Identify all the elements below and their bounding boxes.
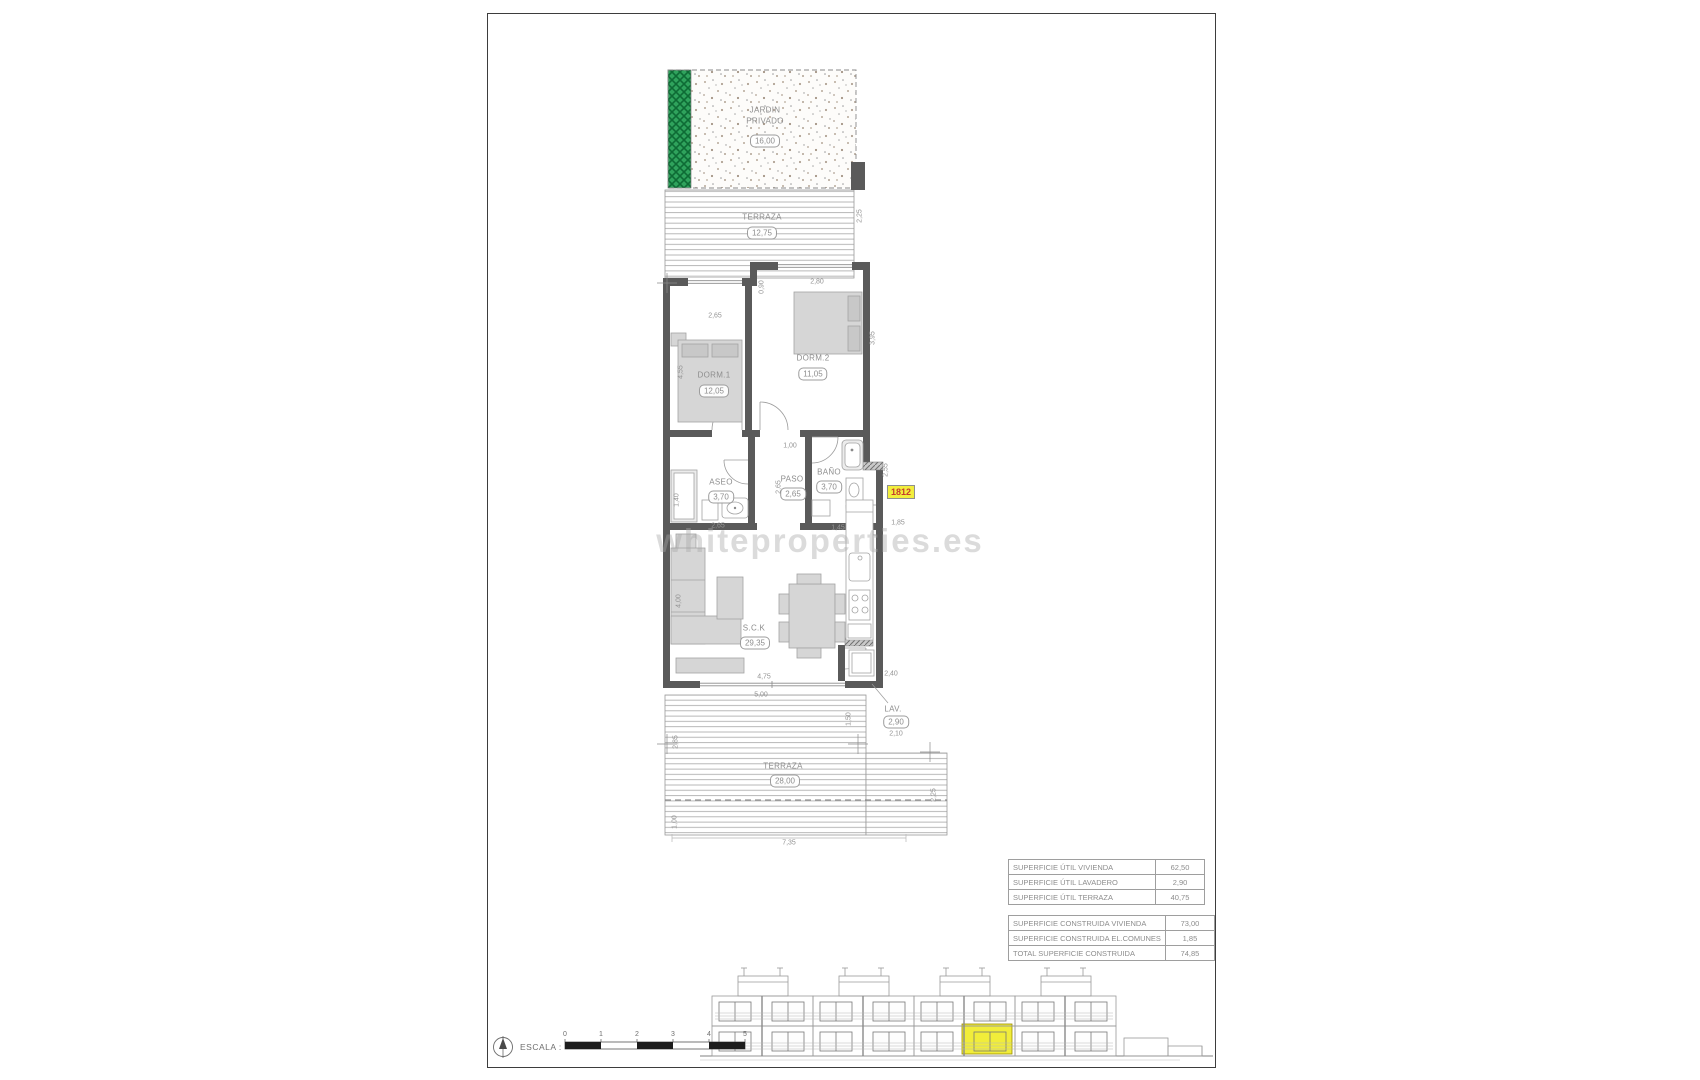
scale-tick: 4 [707, 1031, 711, 1038]
room-label-salon: S.C.K [743, 624, 765, 633]
table-cell-label: SUPERFICIE CONSTRUIDA EL.COMUNES [1009, 931, 1166, 946]
terrace-bottom-label: TERRAZA [763, 762, 802, 771]
table-row: SUPERFICIE CONSTRUIDA VIVIENDA 73,00 [1009, 916, 1215, 931]
garden-label-line2: PRIVADO [746, 117, 784, 126]
dim-living-side: 4,00 [676, 594, 683, 608]
dim-terrace2-top: 5,00 [754, 692, 768, 699]
unit-number-tag: 1812 [887, 485, 915, 499]
terrace-bottom-area-value: 28,00 [770, 775, 800, 788]
scale-label: ESCALA : [520, 1042, 562, 1052]
table-row: TOTAL SUPERFICIE CONSTRUIDA 74,85 [1009, 946, 1215, 961]
dim-terrace2-right: 2,25 [931, 788, 938, 802]
room-area-lav: 2,90 [883, 716, 909, 729]
terrace-top-area-value: 12,75 [747, 227, 777, 240]
table-cell-value: 74,85 [1165, 946, 1214, 961]
scale-tick: 3 [671, 1031, 675, 1038]
room-area-salon: 29,35 [740, 637, 770, 650]
scale-tick: 2 [635, 1031, 639, 1038]
dim-terrace2-bottom: 7,35 [782, 840, 796, 847]
table-cell-label: SUPERFICIE ÚTIL TERRAZA [1009, 890, 1156, 905]
dim-dorm1-side: 4,55 [678, 365, 685, 379]
scale-tick: 1 [599, 1031, 603, 1038]
dim-paso-depth: 2,65 [776, 480, 783, 494]
table-row: SUPERFICIE ÚTIL TERRAZA 40,75 [1009, 890, 1205, 905]
watermark: whiteproperties.es [656, 522, 984, 560]
dim-lav-width: 2,10 [889, 731, 903, 738]
elevation-drawing [700, 968, 1213, 1060]
dim-terrace2-step: 1,50 [846, 712, 853, 726]
dim-terrace2-left: 2,85 [673, 735, 680, 749]
dim-terrace2-bottom-left: 1,00 [672, 815, 679, 829]
dim-dorm1-window: 2,65 [708, 313, 722, 320]
table-cell-label: SUPERFICIE ÚTIL LAVADERO [1009, 875, 1156, 890]
room-label-dorm2: DORM.2 [797, 354, 830, 363]
room-area-bano: 3,70 [816, 481, 842, 494]
dim-bano-width: 1,45 [831, 525, 845, 532]
room-area-paso: 2,65 [780, 488, 806, 501]
garden-area [668, 70, 856, 188]
scale-tick: 5 [743, 1031, 747, 1038]
dim-terrace-top-right: 2,25 [857, 209, 864, 223]
garden-label-line1: JARDIN [750, 106, 781, 115]
table-cell-value: 73,00 [1165, 916, 1214, 931]
dim-step-depth: 0,90 [759, 280, 766, 294]
table-row: SUPERFICIE ÚTIL VIVIENDA 62,50 [1009, 860, 1205, 875]
dim-dorm2-window: 2,80 [810, 279, 824, 286]
page: { "plan": { "garden": {"label1": "JARDIN… [0, 0, 1700, 1080]
dim-aseo-width: 2,65 [711, 523, 725, 530]
table-cell-value: 40,75 [1156, 890, 1205, 905]
room-area-dorm1: 12,05 [699, 385, 729, 398]
room-label-bano: BAÑO [817, 468, 841, 477]
table-cell-label: SUPERFICIE ÚTIL VIVIENDA [1009, 860, 1156, 875]
dim-bano-side: 2,55 [883, 463, 890, 477]
dim-paso-top: 1,00 [783, 443, 797, 450]
highlighted-unit [962, 1024, 1012, 1054]
dim-dorm2-side: 3,95 [870, 331, 877, 345]
table-row: SUPERFICIE ÚTIL LAVADERO 2,90 [1009, 875, 1205, 890]
built-surface-table: SUPERFICIE CONSTRUIDA VIVIENDA 73,00 SUP… [1008, 915, 1215, 961]
north-arrow [494, 1036, 513, 1058]
table-cell-value: 1,85 [1165, 931, 1214, 946]
room-label-dorm1: DORM.1 [698, 371, 731, 380]
dim-aseo-side: 1,40 [674, 493, 681, 507]
room-area-aseo: 3,70 [708, 491, 734, 504]
room-area-dorm2: 11,05 [798, 368, 827, 381]
room-label-lav: LAV. [884, 705, 901, 714]
terrace-top-label: TERRAZA [742, 213, 781, 222]
table-cell-label: SUPERFICIE CONSTRUIDA VIVIENDA [1009, 916, 1166, 931]
garden-area-value: 16,00 [750, 135, 780, 148]
room-label-aseo: ASEO [709, 478, 732, 487]
table-row: SUPERFICIE CONSTRUIDA EL.COMUNES 1,85 [1009, 931, 1215, 946]
room-label-paso: PASO [781, 475, 804, 484]
dim-entry-side: 1,85 [891, 520, 905, 527]
scale-bar [565, 1039, 745, 1049]
table-cell-value: 2,90 [1156, 875, 1205, 890]
dim-living-width: 4,75 [757, 674, 771, 681]
table-cell-value: 62,50 [1156, 860, 1205, 875]
table-cell-label: TOTAL SUPERFICIE CONSTRUIDA [1009, 946, 1166, 961]
util-surface-table: SUPERFICIE ÚTIL VIVIENDA 62,50 SUPERFICI… [1008, 859, 1205, 905]
dim-living-right: 2,40 [884, 671, 898, 678]
scale-tick: 0 [563, 1031, 567, 1038]
